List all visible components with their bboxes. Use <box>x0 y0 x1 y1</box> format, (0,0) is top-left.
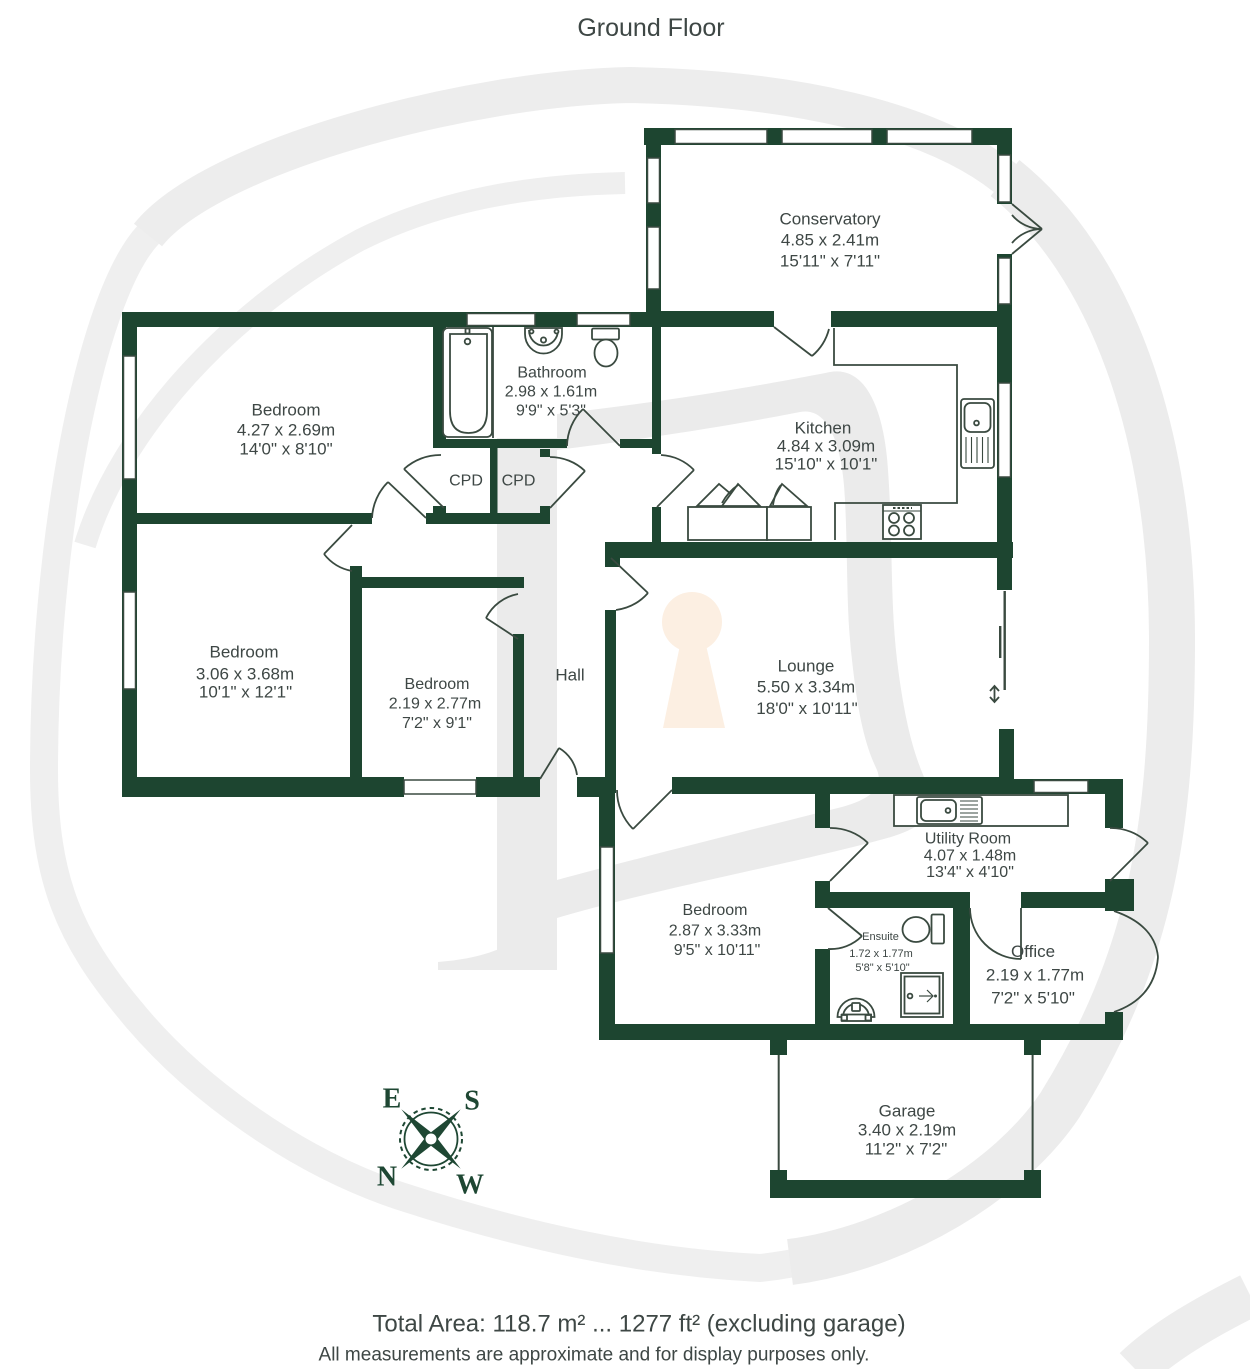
svg-text:9'9" x 5'3": 9'9" x 5'3" <box>516 403 586 420</box>
svg-text:CPD: CPD <box>502 473 536 490</box>
svg-text:2.98 x 1.61m: 2.98 x 1.61m <box>505 384 598 401</box>
svg-text:N: N <box>377 1162 397 1193</box>
svg-text:5.50 x 3.34m: 5.50 x 3.34m <box>757 678 855 697</box>
svg-text:2.19 x 2.77m: 2.19 x 2.77m <box>389 696 482 713</box>
svg-text:Utility Room: Utility Room <box>925 831 1011 848</box>
svg-text:Bathroom: Bathroom <box>517 365 586 382</box>
svg-text:2.19 x 1.77m: 2.19 x 1.77m <box>986 966 1084 985</box>
svg-text:Bedroom: Bedroom <box>252 401 321 420</box>
svg-text:4.27 x 2.69m: 4.27 x 2.69m <box>237 421 335 440</box>
svg-text:Garage: Garage <box>879 1102 936 1121</box>
svg-text:Bedroom: Bedroom <box>210 643 279 662</box>
svg-text:S: S <box>464 1086 480 1117</box>
svg-text:3.40 x 2.19m: 3.40 x 2.19m <box>858 1121 956 1140</box>
svg-text:14'0" x 8'10": 14'0" x 8'10" <box>239 440 332 459</box>
svg-text:Total Area: 118.7 m² ... 1277: Total Area: 118.7 m² ... 1277 ft² (exclu… <box>372 1311 905 1338</box>
svg-text:10'1" x 12'1": 10'1" x 12'1" <box>199 683 292 702</box>
svg-text:Office: Office <box>1011 942 1055 961</box>
svg-text:Conservatory: Conservatory <box>779 210 881 229</box>
svg-text:11'2" x 7'2": 11'2" x 7'2" <box>865 1140 948 1159</box>
svg-text:7'2" x 9'1": 7'2" x 9'1" <box>402 715 472 732</box>
svg-text:Bedroom: Bedroom <box>683 902 748 919</box>
svg-text:E: E <box>383 1084 402 1115</box>
svg-text:18'0" x 10'11": 18'0" x 10'11" <box>756 699 857 718</box>
svg-text:Ensuite: Ensuite <box>862 931 899 943</box>
svg-text:3.06 x 3.68m: 3.06 x 3.68m <box>196 665 294 684</box>
svg-text:1.72 x 1.77m: 1.72 x 1.77m <box>849 948 913 960</box>
svg-text:W: W <box>456 1170 484 1201</box>
svg-text:Lounge: Lounge <box>778 657 835 676</box>
svg-text:4.07 x 1.48m: 4.07 x 1.48m <box>924 848 1017 865</box>
svg-text:All measurements are approxima: All measurements are approximate and for… <box>319 1345 870 1366</box>
svg-text:2.87 x 3.33m: 2.87 x 3.33m <box>669 923 762 940</box>
svg-text:Bedroom: Bedroom <box>405 676 470 693</box>
svg-text:13'4" x 4'10": 13'4" x 4'10" <box>926 864 1014 881</box>
svg-text:7'2" x 5'10": 7'2" x 5'10" <box>991 989 1075 1008</box>
svg-text:15'10" x 10'1": 15'10" x 10'1" <box>775 455 878 474</box>
svg-text:4.85 x 2.41m: 4.85 x 2.41m <box>781 231 879 250</box>
svg-text:Ground Floor: Ground Floor <box>577 14 724 42</box>
svg-text:4.84 x 3.09m: 4.84 x 3.09m <box>777 437 875 456</box>
svg-text:15'11" x 7'11": 15'11" x 7'11" <box>780 252 880 271</box>
svg-text:Hall: Hall <box>555 666 584 685</box>
svg-text:Kitchen: Kitchen <box>795 419 852 438</box>
svg-text:CPD: CPD <box>449 473 483 490</box>
svg-text:9'5" x 10'11": 9'5" x 10'11" <box>674 942 761 959</box>
svg-text:5'8" x 5'10": 5'8" x 5'10" <box>855 962 909 974</box>
